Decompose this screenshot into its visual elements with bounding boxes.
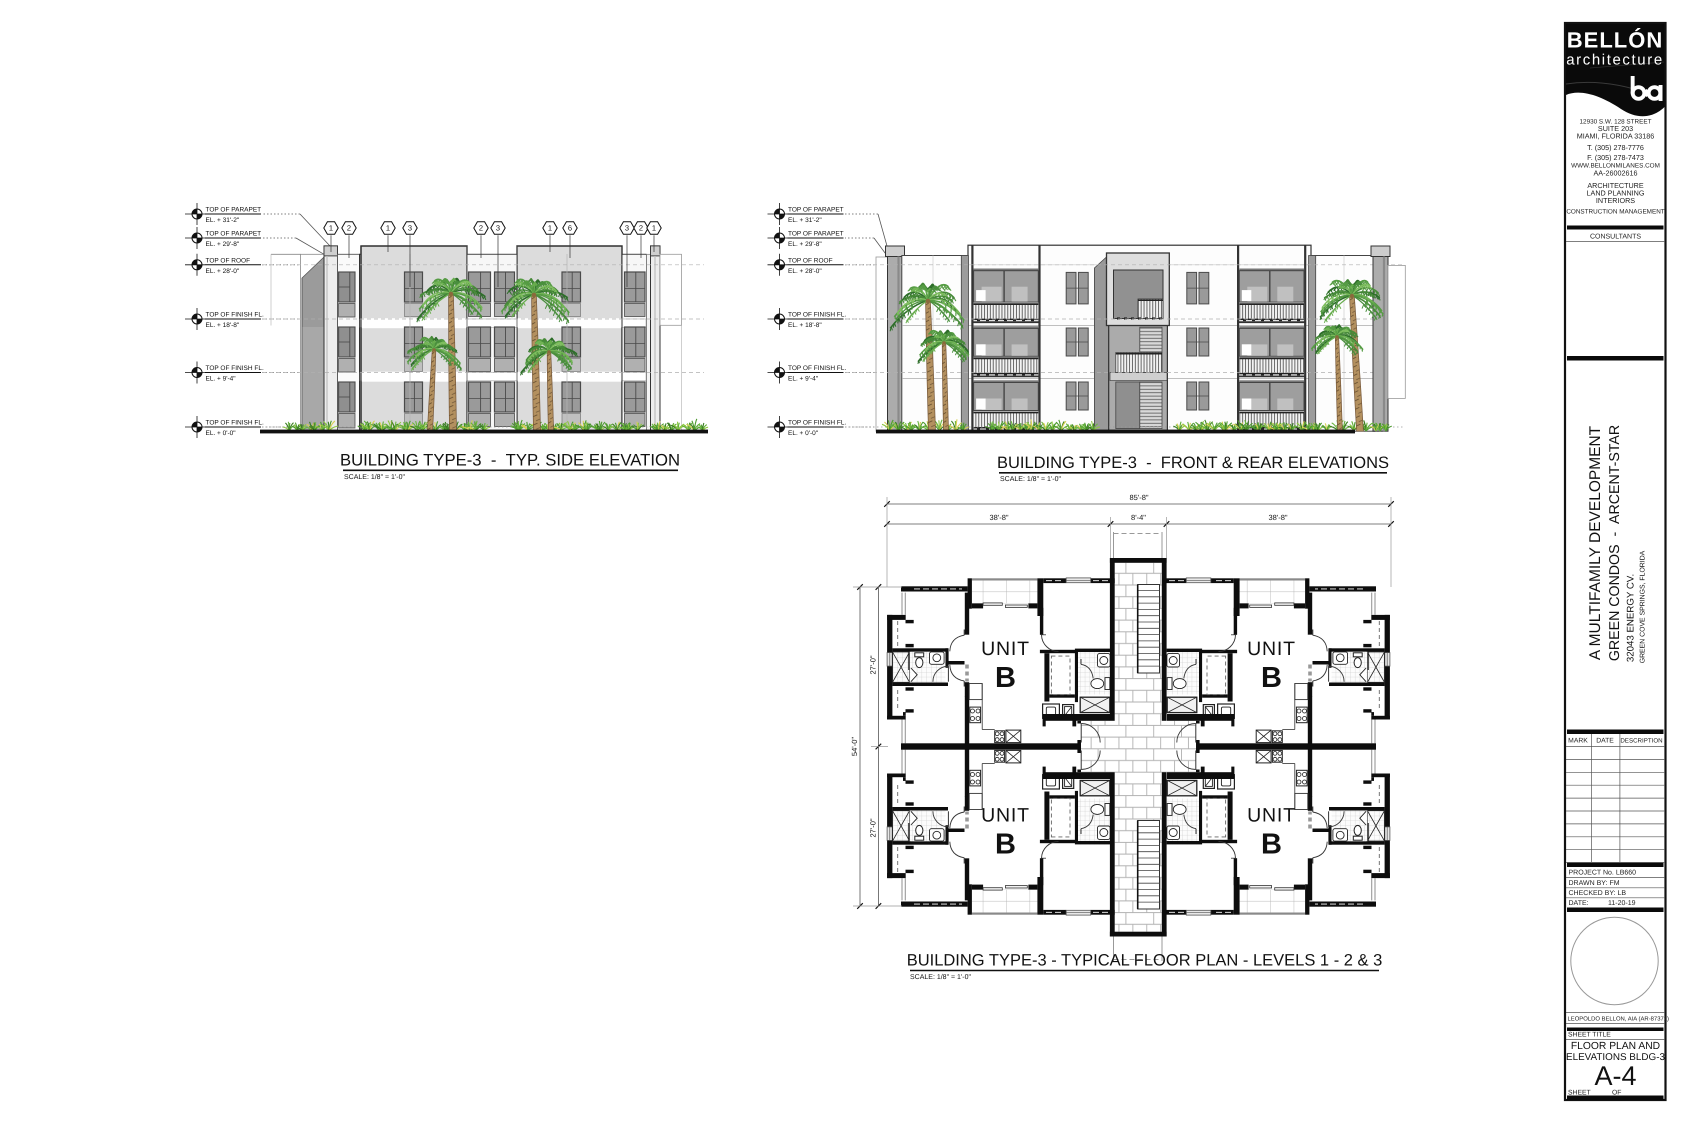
svg-text:TOP OF FINISH FL.: TOP OF FINISH FL.	[206, 420, 264, 427]
svg-text:UNIT: UNIT	[1247, 805, 1296, 827]
svg-text:TOP OF FINISH FL.: TOP OF FINISH FL.	[788, 312, 846, 319]
svg-text:B: B	[995, 829, 1016, 861]
svg-text:CONSULTANTS: CONSULTANTS	[1590, 234, 1641, 241]
svg-text:PROJECT No. LB660: PROJECT No. LB660	[1569, 870, 1637, 877]
svg-text:GREEN CONDOS - ARCENT-STAR: GREEN CONDOS - ARCENT-STAR	[1607, 425, 1623, 661]
svg-text:54'-0": 54'-0"	[850, 737, 859, 756]
svg-text:SHEET TITLE: SHEET TITLE	[1568, 1032, 1611, 1039]
svg-text:DATE:: DATE:	[1569, 900, 1589, 907]
svg-text:TOP OF PARAPET: TOP OF PARAPET	[788, 207, 844, 214]
svg-text:AA-26002616: AA-26002616	[1594, 169, 1638, 178]
svg-text:EL. + 9'-4": EL. + 9'-4"	[788, 376, 819, 383]
svg-text:OF: OF	[1612, 1090, 1621, 1097]
svg-text:A-4: A-4	[1594, 1061, 1636, 1091]
svg-text:27'-0": 27'-0"	[868, 655, 877, 674]
svg-text:UNIT: UNIT	[981, 805, 1030, 827]
svg-text:CHECKED BY: LB: CHECKED BY: LB	[1569, 890, 1627, 897]
svg-text:1: 1	[548, 224, 552, 233]
svg-text:3: 3	[408, 224, 412, 233]
svg-text:TOP OF PARAPET: TOP OF PARAPET	[206, 231, 262, 238]
svg-text:FLOOR PLAN AND: FLOOR PLAN AND	[1571, 1041, 1660, 1052]
svg-text:EL. + 28'-0": EL. + 28'-0"	[206, 268, 240, 275]
svg-text:SCALE: 1/8" = 1'-0": SCALE: 1/8" = 1'-0"	[344, 473, 405, 481]
svg-text:DATE: DATE	[1596, 738, 1614, 745]
svg-text:SHEET: SHEET	[1568, 1090, 1591, 1097]
svg-text:SCALE: 1/8" = 1'-0": SCALE: 1/8" = 1'-0"	[1000, 475, 1061, 483]
svg-text:architecture: architecture	[1566, 52, 1664, 69]
svg-text:A MULTIFAMILY DEVELOPMENT: A MULTIFAMILY DEVELOPMENT	[1587, 425, 1604, 660]
svg-text:11-20-19: 11-20-19	[1608, 900, 1636, 907]
svg-text:3: 3	[496, 224, 500, 233]
svg-text:B: B	[1261, 829, 1282, 861]
svg-text:TOP OF FINISH FL.: TOP OF FINISH FL.	[788, 365, 846, 372]
svg-text:GREEN COVE SPRINGS, FLORIDA: GREEN COVE SPRINGS, FLORIDA	[1640, 550, 1647, 663]
svg-text:EL. + 29'-8": EL. + 29'-8"	[788, 241, 822, 248]
svg-text:BUILDING TYPE-3 - FRONT & RE: BUILDING TYPE-3 - FRONT & REAR ELEVATION…	[997, 454, 1389, 472]
svg-text:LEOPOLDO BELLON, AIA (AR-87371: LEOPOLDO BELLON, AIA (AR-87371)	[1568, 1016, 1670, 1023]
svg-text:BUILDING TYPE-3 - TYPICAL FLOO: BUILDING TYPE-3 - TYPICAL FLOOR PLAN - L…	[907, 952, 1383, 970]
svg-text:EL. + 31'-2": EL. + 31'-2"	[788, 217, 822, 224]
svg-text:85'-8": 85'-8"	[1129, 493, 1148, 502]
svg-text:T. (305) 278-7776: T. (305) 278-7776	[1587, 143, 1644, 152]
svg-text:1: 1	[652, 224, 656, 233]
svg-text:6: 6	[568, 224, 572, 233]
svg-text:EL. + 0'-0": EL. + 0'-0"	[206, 430, 237, 437]
svg-text:MIAMI, FLORIDA 33186: MIAMI, FLORIDA 33186	[1577, 132, 1655, 141]
svg-text:EL. + 9'-4": EL. + 9'-4"	[206, 376, 237, 383]
svg-text:38'-8": 38'-8"	[1268, 513, 1287, 522]
svg-text:B: B	[1261, 662, 1282, 694]
svg-text:BUILDING TYPE-3 - TYP. SIDE: BUILDING TYPE-3 - TYP. SIDE ELEVATION	[340, 451, 680, 470]
svg-text:TOP OF PARAPET: TOP OF PARAPET	[206, 207, 262, 214]
svg-text:EL. + 0'-0": EL. + 0'-0"	[788, 430, 819, 437]
svg-text:MARK: MARK	[1568, 738, 1588, 745]
svg-text:SCALE: 1/8" = 1'-0": SCALE: 1/8" = 1'-0"	[910, 973, 971, 981]
svg-text:TOP OF ROOF: TOP OF ROOF	[788, 257, 833, 264]
svg-text:INTERIORS: INTERIORS	[1596, 196, 1635, 205]
svg-text:TOP OF FINISH FL.: TOP OF FINISH FL.	[206, 365, 264, 372]
svg-text:F. (305) 278-7473: F. (305) 278-7473	[1587, 153, 1644, 162]
svg-text:2: 2	[347, 224, 351, 233]
svg-text:EL. + 29'-8": EL. + 29'-8"	[206, 241, 240, 248]
svg-text:2: 2	[639, 224, 643, 233]
svg-text:1: 1	[386, 224, 390, 233]
svg-text:TOP OF ROOF: TOP OF ROOF	[206, 257, 251, 264]
svg-text:3: 3	[625, 224, 629, 233]
svg-text:UNIT: UNIT	[981, 638, 1030, 660]
svg-text:EL. + 31'-2": EL. + 31'-2"	[206, 217, 240, 224]
svg-text:8'-4": 8'-4"	[1131, 513, 1146, 522]
svg-text:FM: FM	[1610, 880, 1620, 887]
svg-text:DESCRIPTION: DESCRIPTION	[1620, 738, 1662, 745]
svg-text:EL. + 18'-8": EL. + 18'-8"	[206, 322, 240, 329]
svg-text:TOP OF FINISH FL.: TOP OF FINISH FL.	[206, 312, 264, 319]
svg-text:32043 ENERGY CV.: 32043 ENERGY CV.	[1626, 574, 1637, 662]
svg-text:38'-8": 38'-8"	[989, 513, 1008, 522]
svg-text:27'-0": 27'-0"	[868, 818, 877, 837]
svg-text:UNIT: UNIT	[1247, 638, 1296, 660]
svg-text:2: 2	[479, 224, 483, 233]
svg-text:EL. + 28'-0": EL. + 28'-0"	[788, 268, 822, 275]
svg-text:1: 1	[329, 224, 333, 233]
svg-text:BELLÓN: BELLÓN	[1567, 28, 1663, 53]
svg-text:CONSTRUCTION MANAGEMENT: CONSTRUCTION MANAGEMENT	[1566, 209, 1664, 216]
svg-text:TOP OF PARAPET: TOP OF PARAPET	[788, 231, 844, 238]
svg-text:DRAWN BY:: DRAWN BY:	[1569, 880, 1608, 887]
svg-text:TOP OF FINISH FL.: TOP OF FINISH FL.	[788, 420, 846, 427]
svg-text:B: B	[995, 662, 1016, 694]
svg-text:EL. + 18'-8": EL. + 18'-8"	[788, 322, 822, 329]
